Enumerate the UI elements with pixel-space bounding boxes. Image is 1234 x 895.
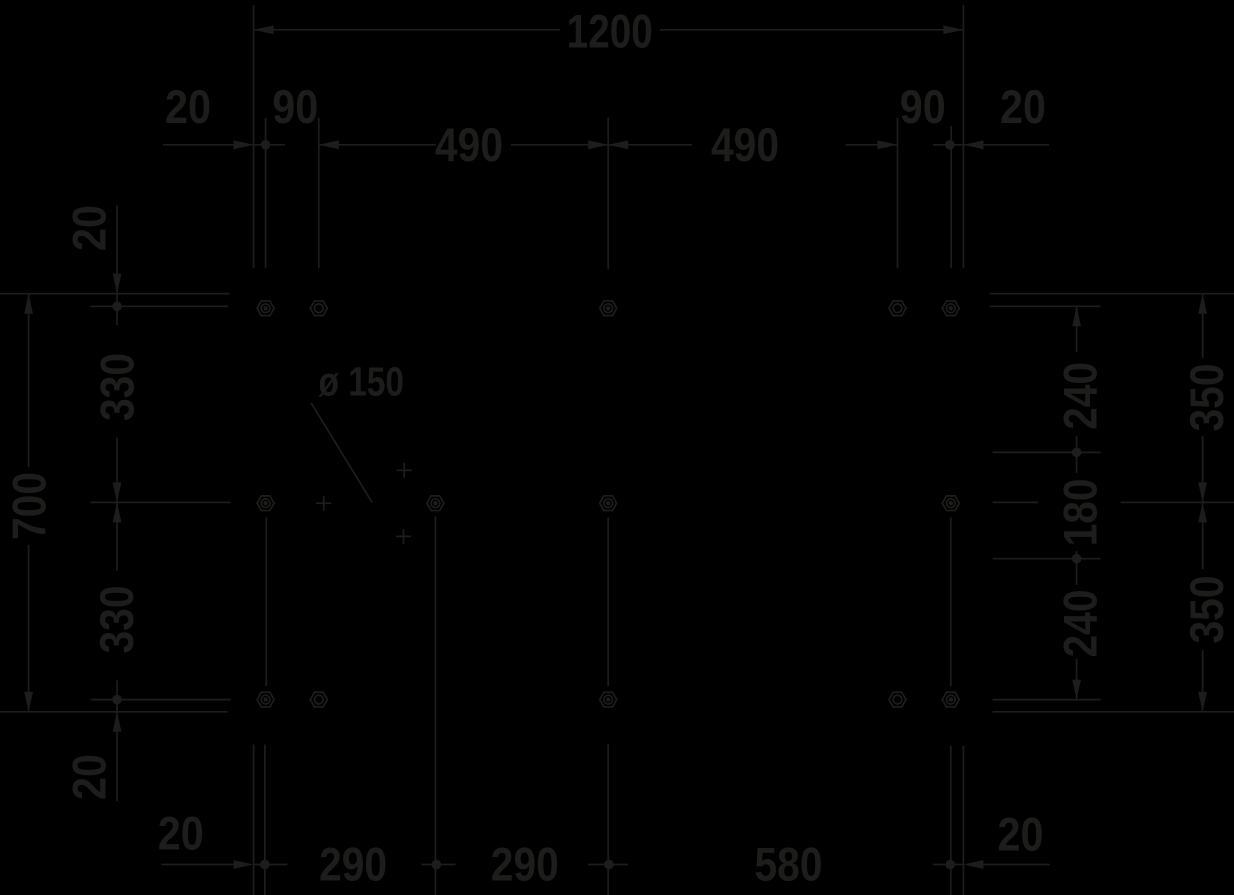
svg-text:330: 330 xyxy=(90,586,143,654)
svg-text:1200: 1200 xyxy=(567,5,653,58)
svg-text:90: 90 xyxy=(900,80,946,133)
svg-text:490: 490 xyxy=(435,118,503,171)
svg-text:90: 90 xyxy=(272,80,318,133)
svg-text:580: 580 xyxy=(755,838,823,891)
svg-text:20: 20 xyxy=(62,754,115,800)
svg-text:20: 20 xyxy=(998,808,1044,861)
svg-text:20: 20 xyxy=(158,807,204,860)
svg-text:20: 20 xyxy=(165,80,211,133)
svg-text:700: 700 xyxy=(3,472,56,540)
svg-text:ø 150: ø 150 xyxy=(319,359,405,405)
svg-text:20: 20 xyxy=(63,205,116,251)
svg-text:290: 290 xyxy=(319,837,387,890)
svg-text:180: 180 xyxy=(1054,478,1107,546)
svg-text:490: 490 xyxy=(711,118,779,171)
svg-text:350: 350 xyxy=(1180,576,1233,644)
svg-text:240: 240 xyxy=(1054,362,1107,430)
svg-text:330: 330 xyxy=(91,353,144,421)
svg-text:20: 20 xyxy=(1000,80,1046,133)
svg-text:290: 290 xyxy=(491,837,559,890)
svg-text:350: 350 xyxy=(1180,364,1233,432)
svg-text:240: 240 xyxy=(1054,590,1107,658)
